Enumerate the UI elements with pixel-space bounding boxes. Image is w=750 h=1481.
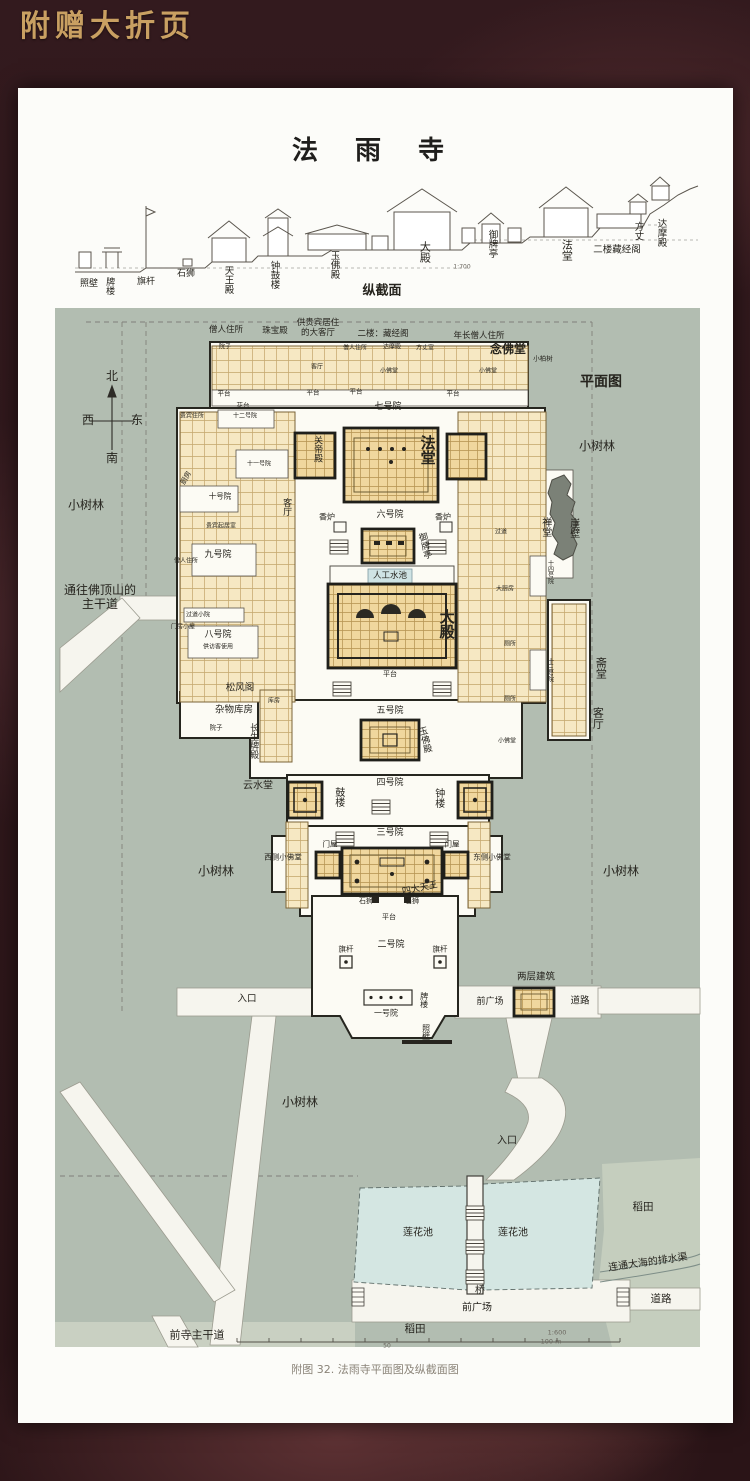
front-road-band bbox=[55, 1322, 355, 1347]
lotus-pond-west bbox=[354, 1186, 467, 1290]
lotus-pond-east bbox=[483, 1178, 600, 1290]
figure-caption: 附图 32. 法雨寺平面图及纵截面图 bbox=[0, 1361, 750, 1377]
artificial-pool-shape bbox=[368, 569, 412, 583]
dharma-hall-shape bbox=[344, 428, 438, 502]
two-story-building-shape bbox=[514, 988, 554, 1016]
temple-title: 法 雨 寺 bbox=[0, 130, 750, 167]
temple-drawing bbox=[0, 0, 750, 1481]
book-photo-canvas: 照壁牌楼旗杆石狮天王殿钟鼓楼玉佛殿大殿御牌亭法堂二楼藏经阁方丈达摩殿纵截面1:7… bbox=[0, 0, 750, 1481]
incense-burner-shape bbox=[440, 522, 452, 532]
guandi-hall-shape bbox=[295, 433, 335, 478]
main-hall-shape bbox=[328, 584, 456, 668]
incense-burner-shape bbox=[334, 522, 346, 532]
platform-strip bbox=[212, 390, 528, 406]
foldout-title: 附赠大折页 bbox=[20, 1, 195, 45]
section-drawing bbox=[75, 177, 698, 272]
